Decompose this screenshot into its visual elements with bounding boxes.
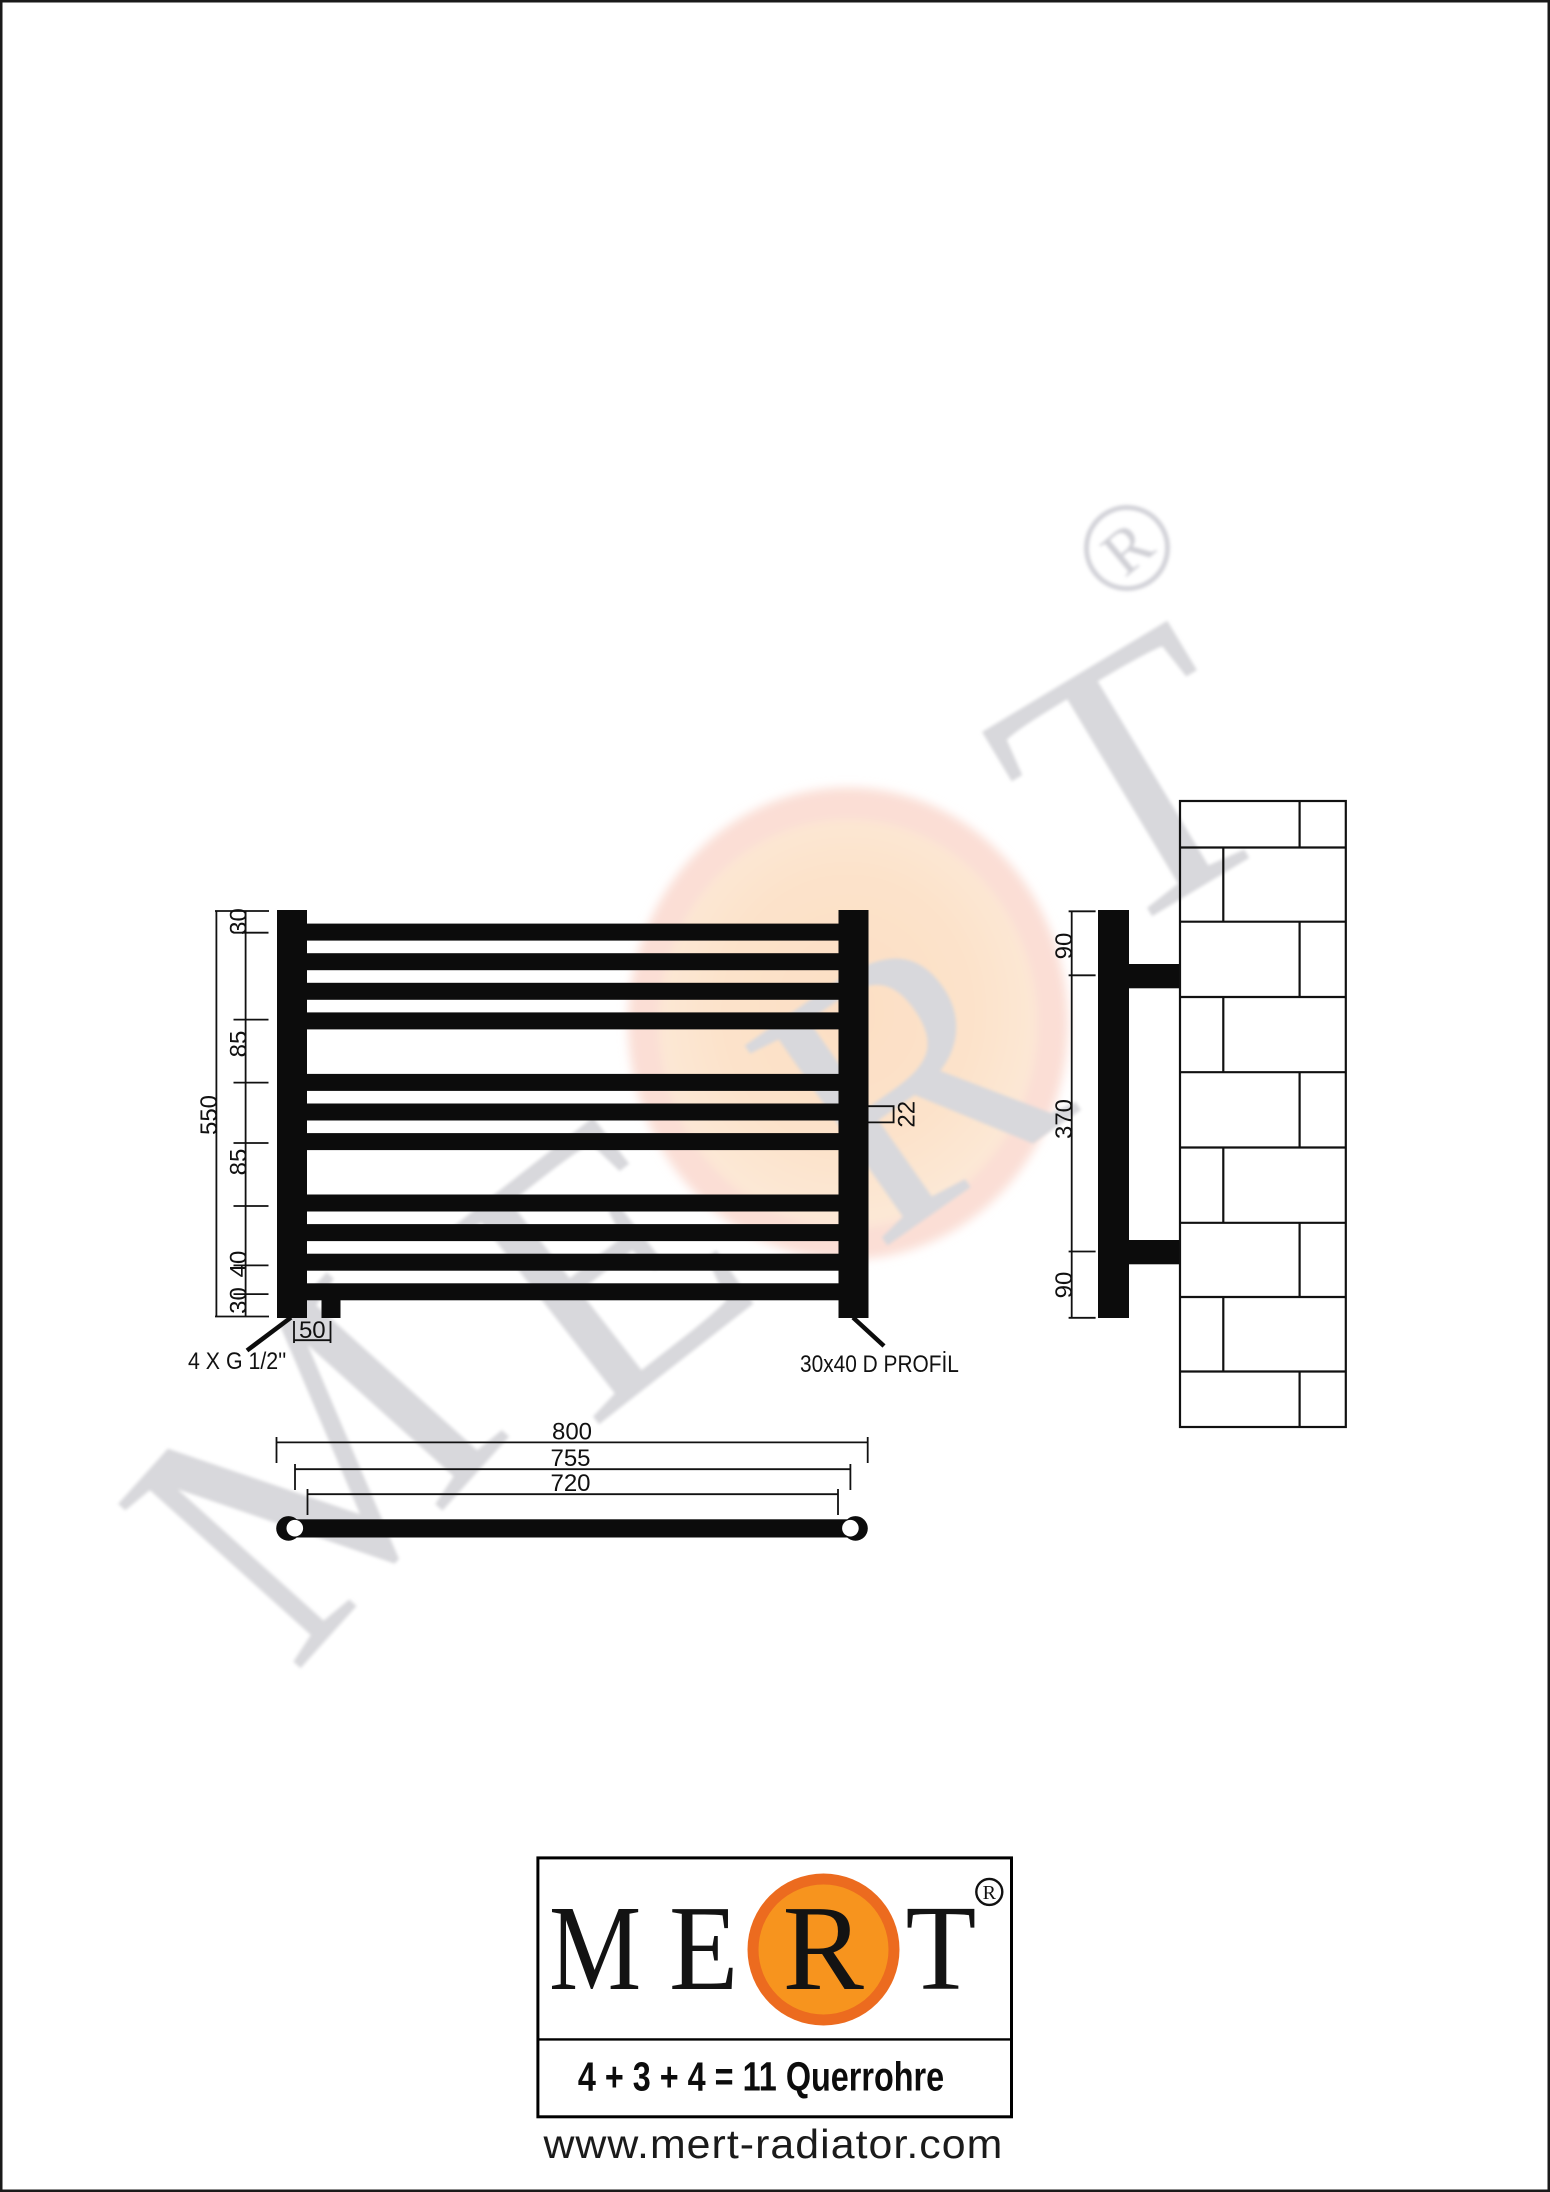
svg-text:30x40 D PROFİL: 30x40 D PROFİL <box>800 1351 959 1378</box>
svg-text:90: 90 <box>1051 1272 1078 1299</box>
svg-text:4 X G 1/2'': 4 X G 1/2'' <box>188 1347 286 1374</box>
svg-text:85: 85 <box>226 1149 253 1176</box>
svg-text:22: 22 <box>894 1101 921 1128</box>
svg-text:50: 50 <box>299 1317 326 1344</box>
svg-text:370: 370 <box>1051 1099 1078 1139</box>
svg-text:R: R <box>983 1882 997 1904</box>
svg-text:90: 90 <box>1051 933 1078 960</box>
svg-text:550: 550 <box>196 1095 223 1135</box>
svg-text:www.mert-radiator.com: www.mert-radiator.com <box>542 2121 1003 2167</box>
svg-text:T: T <box>906 1880 977 2015</box>
svg-text:M: M <box>549 1881 641 2016</box>
svg-text:30: 30 <box>226 908 253 935</box>
svg-text:800: 800 <box>552 1418 592 1445</box>
svg-text:R: R <box>783 1881 865 2016</box>
svg-text:E: E <box>669 1881 738 2016</box>
svg-text:30: 30 <box>226 1287 253 1314</box>
svg-text:40: 40 <box>226 1251 253 1278</box>
svg-text:755: 755 <box>550 1445 590 1472</box>
svg-text:4 + 3 + 4 = 11 Querrohre: 4 + 3 + 4 = 11 Querrohre <box>578 2054 944 2099</box>
svg-text:85: 85 <box>226 1031 253 1058</box>
svg-text:720: 720 <box>550 1470 590 1497</box>
